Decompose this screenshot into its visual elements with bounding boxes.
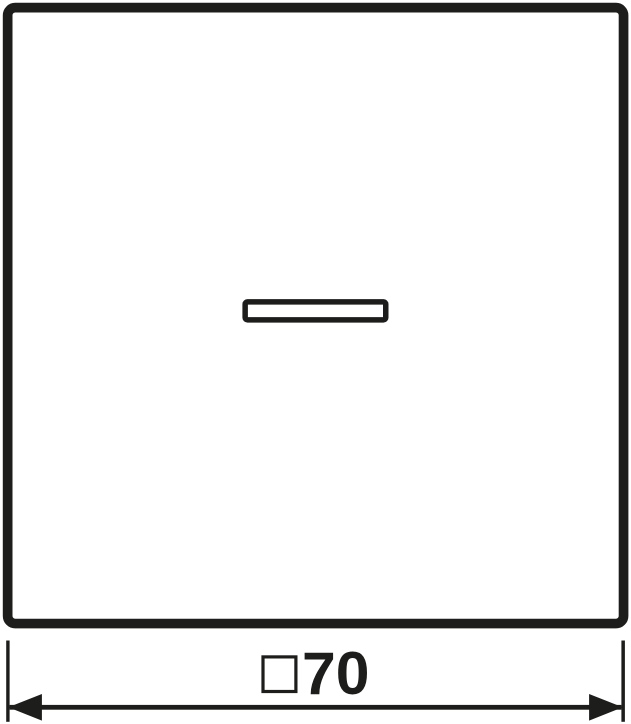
svg-text:70: 70 xyxy=(302,639,370,707)
